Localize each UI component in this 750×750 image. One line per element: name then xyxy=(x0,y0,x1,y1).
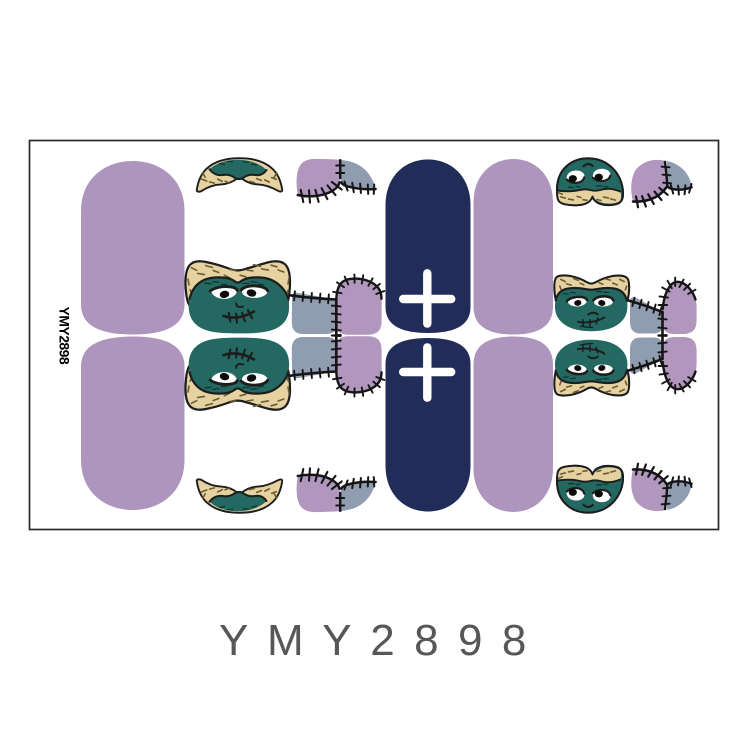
svg-text:Y M Y 2 8 9 8: Y M Y 2 8 9 8 xyxy=(219,616,530,665)
svg-text:YMY2898: YMY2898 xyxy=(57,307,73,365)
